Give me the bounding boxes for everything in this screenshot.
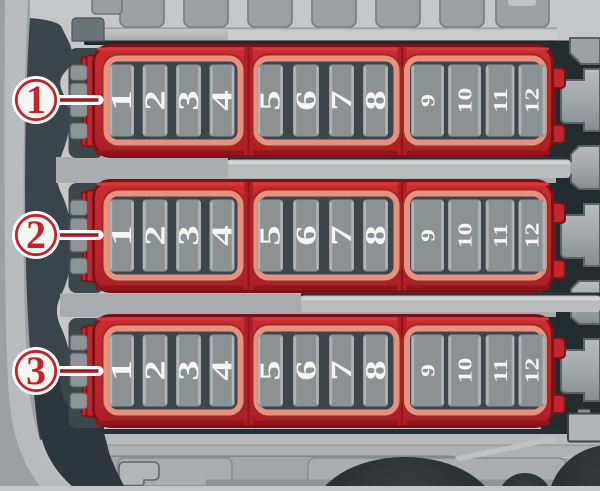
svg-text:4: 4: [207, 90, 238, 110]
svg-text:6: 6: [291, 90, 322, 110]
svg-text:7: 7: [326, 225, 357, 245]
svg-text:12: 12: [521, 88, 543, 114]
svg-text:9: 9: [417, 94, 439, 107]
svg-text:6: 6: [291, 360, 322, 380]
svg-text:5: 5: [255, 360, 286, 380]
svg-text:1: 1: [106, 225, 137, 245]
svg-text:3: 3: [26, 348, 46, 393]
svg-text:5: 5: [255, 225, 286, 245]
svg-text:7: 7: [326, 90, 357, 110]
svg-text:11: 11: [489, 358, 511, 382]
svg-text:9: 9: [417, 229, 439, 242]
svg-text:3: 3: [173, 225, 204, 245]
svg-text:11: 11: [489, 223, 511, 247]
svg-text:9: 9: [417, 364, 439, 377]
svg-text:10: 10: [454, 358, 476, 384]
svg-text:8: 8: [360, 90, 391, 110]
svg-text:1: 1: [26, 77, 46, 122]
svg-text:12: 12: [521, 358, 543, 384]
svg-text:2: 2: [26, 212, 46, 257]
svg-text:11: 11: [489, 88, 511, 112]
svg-text:8: 8: [360, 360, 391, 380]
svg-text:8: 8: [360, 225, 391, 245]
svg-text:7: 7: [326, 360, 357, 380]
svg-text:1: 1: [106, 90, 137, 110]
svg-text:3: 3: [173, 360, 204, 380]
svg-text:1: 1: [106, 360, 137, 380]
svg-text:2: 2: [140, 360, 171, 380]
svg-text:2: 2: [140, 90, 171, 110]
svg-text:4: 4: [207, 225, 238, 245]
svg-text:12: 12: [521, 223, 543, 249]
svg-text:6: 6: [291, 225, 322, 245]
svg-text:4: 4: [207, 360, 238, 380]
svg-text:5: 5: [255, 90, 286, 110]
svg-text:2: 2: [140, 225, 171, 245]
svg-text:10: 10: [454, 88, 476, 114]
svg-text:3: 3: [173, 90, 204, 110]
svg-text:10: 10: [454, 223, 476, 249]
